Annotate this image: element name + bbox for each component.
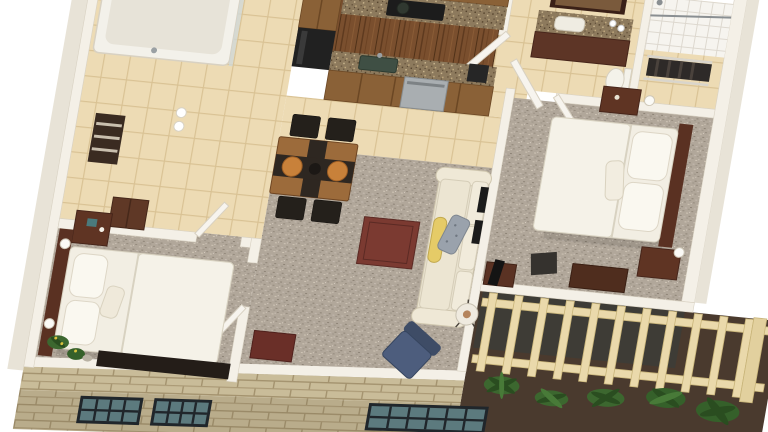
bedroom1-window-2 [150, 398, 213, 427]
vanity-basin [554, 16, 586, 33]
countertop-appliance [466, 64, 489, 84]
toiletry-jar [609, 20, 616, 27]
bedroom1-window-1 [76, 396, 144, 425]
nightstand [600, 86, 642, 115]
dishwasher [400, 77, 449, 112]
bed1-duvet [121, 253, 234, 364]
media-console [250, 330, 296, 362]
tiled-shower [644, 0, 733, 58]
nightstand-book [86, 218, 97, 227]
floorplan-render: Two-Bedroom Apartment — 3D Floor Plan Re… [0, 0, 768, 432]
patio [453, 290, 768, 432]
floor-item [531, 252, 557, 275]
storage-bench [569, 264, 628, 293]
bed2-pillow [626, 131, 674, 182]
shower-tile [644, 0, 733, 58]
apartment-plan [0, 0, 768, 432]
bed2-pillow [617, 182, 665, 233]
bed2-accent-pillow [605, 161, 624, 201]
floorplan-render-stage: Two-Bedroom Apartment — 3D Floor Plan Re… [0, 0, 768, 432]
living-room-window [364, 403, 488, 432]
toiletry-jar [617, 25, 624, 32]
nightstand [71, 210, 112, 246]
bed1-pillow [68, 253, 109, 299]
